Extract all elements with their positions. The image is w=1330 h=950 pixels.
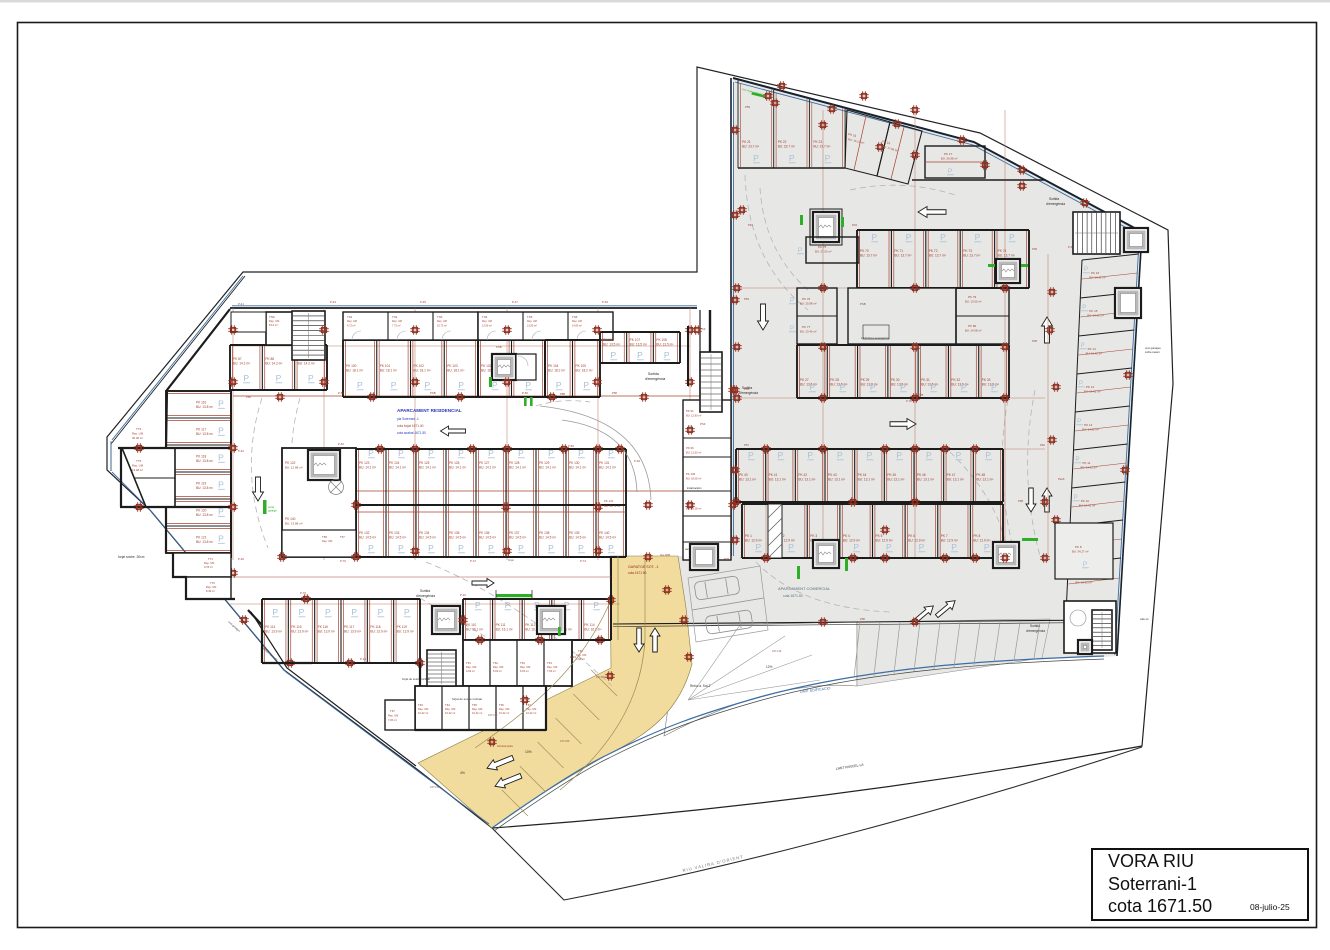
svg-text:PK 11: PK 11: [1082, 461, 1090, 465]
svg-text:P: P: [593, 600, 599, 610]
svg-text:P: P: [906, 232, 912, 242]
svg-text:PK 121: PK 121: [196, 536, 207, 540]
svg-text:Rep. UM: Rep. UM: [527, 320, 537, 323]
svg-text:P: P: [518, 543, 524, 553]
svg-text:P-70: P-70: [340, 559, 346, 563]
svg-text:PK 31: PK 31: [921, 378, 930, 382]
svg-text:PK 116: PK 116: [196, 401, 206, 405]
svg-text:PK 117: PK 117: [196, 428, 206, 432]
svg-text:P: P: [458, 448, 464, 458]
svg-text:BU: 14.42 m²: BU: 14.42 m²: [1080, 466, 1097, 470]
svg-text:PK 72: PK 72: [929, 249, 938, 253]
svg-text:PK 10: PK 10: [1081, 499, 1090, 503]
svg-text:BU: 12.88 m²: BU: 12.88 m²: [285, 466, 303, 470]
svg-text:P-52: P-52: [338, 391, 344, 395]
svg-text:8.49 m²: 8.49 m²: [206, 589, 215, 593]
svg-text:T63: T63: [418, 703, 423, 707]
svg-text:P: P: [299, 607, 305, 617]
svg-text:PK 102: PK 102: [481, 364, 492, 368]
svg-text:APARCAMENT COMERCIAL: APARCAMENT COMERCIAL: [778, 586, 831, 591]
svg-text:P: P: [789, 153, 795, 163]
svg-text:7.72 m²: 7.72 m²: [392, 325, 401, 328]
svg-text:P: P: [984, 542, 990, 552]
svg-text:P63: P63: [744, 297, 749, 301]
svg-text:cota 1671.50: cota 1671.50: [783, 594, 803, 598]
svg-text:PK 47: PK 47: [947, 473, 956, 477]
svg-text:P: P: [218, 534, 224, 544]
svg-text:4.72 m²: 4.72 m²: [347, 325, 356, 328]
svg-text:Rep. UM: Rep. UM: [499, 707, 509, 711]
svg-text:P: P: [840, 382, 846, 392]
svg-text:BU: 14.1 m²: BU: 14.1 m²: [419, 466, 436, 470]
svg-text:vent garatges: vent garatges: [1145, 346, 1161, 350]
svg-text:PK 129: PK 129: [539, 461, 550, 465]
svg-text:4%: 4%: [460, 771, 465, 775]
svg-text:Rep. UM: Rep. UM: [269, 319, 279, 323]
svg-text:Rep. UM: Rep. UM: [392, 320, 402, 323]
svg-text:14.80 m²: 14.80 m²: [572, 325, 582, 328]
svg-text:P: P: [368, 543, 374, 553]
svg-text:instal·lacions: instal·lacions: [687, 487, 702, 490]
svg-text:PK 128: PK 128: [509, 461, 520, 465]
svg-text:BU: 13.9 m²: BU: 13.9 m²: [291, 630, 308, 634]
svg-text:PK 134: PK 134: [419, 531, 430, 535]
svg-text:cota 1671.50: cota 1671.50: [628, 571, 647, 575]
svg-text:P: P: [308, 373, 314, 383]
svg-text:BU: 14.5 m²: BU: 14.5 m²: [479, 536, 496, 540]
svg-text:d'emergència: d'emergència: [739, 391, 758, 395]
svg-text:Rep. UM: Rep. UM: [520, 665, 530, 669]
svg-text:PK 122: PK 122: [285, 461, 296, 465]
svg-text:BU: 14.1 m²: BU: 14.1 m²: [449, 466, 466, 470]
svg-text:PK 91: PK 91: [686, 409, 694, 413]
svg-text:BU: 14.42 m²: BU: 14.42 m²: [1084, 390, 1101, 394]
svg-text:P: P: [556, 380, 562, 390]
svg-text:Rep. UM: Rep. UM: [418, 707, 428, 711]
svg-text:P: P: [458, 380, 464, 390]
svg-text:PK 8: PK 8: [973, 534, 980, 538]
svg-text:P: P: [1077, 419, 1081, 425]
svg-text:P: P: [753, 153, 759, 163]
svg-text:forjat de sostre inclinat: forjat de sostre inclinat: [402, 677, 430, 681]
svg-text:TT1: TT1: [208, 557, 213, 561]
svg-text:P: P: [1075, 457, 1079, 463]
svg-text:BU: 14.1 m²: BU: 14.1 m²: [479, 466, 496, 470]
svg-text:P: P: [930, 382, 936, 392]
svg-text:P: P: [853, 542, 859, 552]
svg-text:PK 131: PK 131: [604, 499, 614, 503]
svg-text:BU: 38.71 m²: BU: 38.71 m²: [604, 504, 621, 508]
svg-text:BU: 13.5 m²: BU: 13.5 m²: [656, 343, 673, 347]
svg-text:P: P: [940, 232, 946, 242]
svg-text:BU: 13.9 m²: BU: 13.9 m²: [397, 630, 414, 634]
svg-text:1671.50: 1671.50: [430, 785, 440, 789]
svg-text:P: P: [867, 450, 873, 460]
svg-text:P: P: [404, 607, 410, 617]
svg-text:fins 60B: fins 60B: [660, 553, 670, 557]
svg-text:1671.80: 1671.80: [560, 739, 570, 743]
svg-text:P: P: [1084, 267, 1088, 273]
svg-text:BU: 18.2 m²: BU: 18.2 m²: [576, 369, 593, 373]
svg-text:P: P: [755, 542, 761, 552]
svg-text:BU: 14.5 m²: BU: 14.5 m²: [599, 536, 616, 540]
svg-text:P: P: [325, 607, 331, 617]
svg-text:P: P: [961, 382, 967, 392]
svg-text:Rep. UM: Rep. UM: [466, 665, 476, 669]
svg-text:PK 15: PK 15: [1089, 309, 1098, 313]
svg-text:PSB: PSB: [496, 345, 502, 349]
svg-text:PK 48: PK 48: [976, 473, 985, 477]
svg-text:TN5: TN5: [527, 315, 533, 319]
svg-text:P28: P28: [724, 557, 729, 561]
svg-text:P: P: [578, 543, 584, 553]
svg-text:PK 108: PK 108: [656, 338, 667, 342]
svg-text:P: P: [488, 543, 494, 553]
svg-text:BU: 18.1 m²: BU: 18.1 m²: [380, 369, 397, 373]
svg-text:P: P: [218, 426, 224, 436]
svg-text:P: P: [492, 380, 498, 390]
svg-text:BU: 16.1 m²: BU: 16.1 m²: [584, 628, 601, 632]
svg-text:P61: P61: [748, 223, 753, 227]
svg-text:cota 1671.50: cota 1671.50: [1108, 896, 1212, 916]
svg-text:P: P: [790, 326, 794, 332]
svg-text:Rep. UM: Rep. UM: [472, 707, 482, 711]
svg-text:BU: 13.1 m²: BU: 13.1 m²: [828, 478, 845, 482]
svg-text:PK 45: PK 45: [887, 473, 896, 477]
svg-text:PK 74: PK 74: [998, 249, 1007, 253]
svg-text:PK 103: PK 103: [447, 364, 458, 368]
svg-text:Rep. UM: Rep. UM: [482, 320, 492, 323]
svg-text:PSF: PSF: [700, 422, 706, 426]
svg-text:Rep. UM: Rep. UM: [206, 585, 216, 589]
svg-text:P: P: [951, 542, 957, 552]
svg-text:BU: 14.2 m²: BU: 14.2 m²: [298, 362, 315, 366]
svg-text:Sortida: Sortida: [648, 372, 659, 376]
svg-text:BU: 13.1 m²: BU: 13.1 m²: [976, 478, 993, 482]
svg-text:BU: 13.7 m²: BU: 13.7 m²: [998, 254, 1015, 258]
svg-text:P: P: [351, 607, 357, 617]
svg-text:BU: 16.1 m²: BU: 16.1 m²: [466, 628, 483, 632]
svg-text:PK 4: PK 4: [843, 534, 850, 538]
svg-text:d'emergència: d'emergència: [416, 594, 435, 598]
svg-text:P-72: P-72: [470, 559, 476, 563]
svg-text:PK 138: PK 138: [539, 531, 550, 535]
svg-text:P34: P34: [852, 223, 857, 227]
svg-text:BU: 14.42 m²: BU: 14.42 m²: [1086, 352, 1103, 356]
svg-text:sobre-rasant: sobre-rasant: [1145, 350, 1160, 354]
svg-text:PK 27: PK 27: [800, 378, 809, 382]
svg-text:Rep. UM: Rep. UM: [388, 714, 398, 718]
svg-text:PK 115: PK 115: [291, 625, 301, 629]
svg-text:PK 44: PK 44: [858, 473, 867, 477]
svg-text:P-30: P-30: [634, 459, 640, 463]
svg-text:BU: 13.1 m²: BU: 13.1 m²: [739, 478, 756, 482]
svg-text:0.78 m²: 0.78 m²: [204, 565, 213, 569]
svg-text:T62: T62: [493, 661, 498, 665]
svg-text:P: P: [488, 448, 494, 458]
svg-text:12%: 12%: [766, 665, 773, 669]
svg-text:P: P: [368, 448, 374, 458]
svg-text:BU: 27.00 m²: BU: 27.00 m²: [815, 250, 832, 254]
svg-text:PK 28: PK 28: [830, 378, 839, 382]
svg-text:P-45: P-45: [420, 300, 426, 304]
svg-text:30.06 m²: 30.06 m²: [132, 436, 143, 440]
svg-text:garatge: garatge: [268, 509, 277, 513]
svg-text:P: P: [1083, 561, 1087, 568]
svg-text:10.72 m²: 10.72 m²: [437, 325, 447, 328]
svg-text:P: P: [276, 373, 282, 383]
svg-text:PK 73: PK 73: [963, 249, 972, 253]
svg-text:P: P: [272, 607, 278, 617]
svg-text:BU: 12.50 m²: BU: 12.50 m²: [686, 451, 701, 455]
svg-text:Rep. UM: Rep. UM: [437, 320, 447, 323]
svg-text:BU: 26.88 m²: BU: 26.88 m²: [941, 157, 958, 161]
svg-text:PK 87: PK 87: [233, 357, 242, 361]
svg-text:P96: P96: [860, 617, 865, 621]
svg-text:P: P: [525, 380, 531, 390]
svg-text:P58: P58: [612, 391, 617, 395]
svg-text:P: P: [896, 450, 902, 460]
svg-text:10.42 m²: 10.42 m²: [445, 711, 455, 715]
svg-text:Rep. UM: Rep. UM: [526, 707, 536, 711]
svg-text:P: P: [578, 448, 584, 458]
svg-text:BU: 13.1 m²: BU: 13.1 m²: [917, 478, 934, 482]
svg-text:P: P: [378, 607, 384, 617]
svg-text:PK 77: PK 77: [802, 325, 811, 329]
svg-text:Rep. UM: Rep. UM: [132, 432, 144, 436]
svg-text:PK 79: PK 79: [968, 295, 977, 299]
svg-text:10.42 m²: 10.42 m²: [526, 711, 536, 715]
svg-text:BU: 13.00 m²: BU: 13.00 m²: [965, 300, 982, 304]
svg-text:P36: P36: [1032, 247, 1037, 251]
svg-text:P50: P50: [246, 395, 251, 399]
svg-text:P-16: P-16: [460, 593, 466, 597]
svg-text:TN1: TN1: [347, 315, 353, 319]
svg-text:TT0: TT0: [210, 581, 215, 585]
svg-text:P: P: [991, 382, 997, 392]
svg-text:P40: P40: [1040, 443, 1045, 447]
svg-text:P: P: [926, 450, 932, 460]
svg-text:T66: T66: [499, 703, 504, 707]
svg-text:4.03 m²: 4.03 m²: [466, 669, 475, 673]
svg-text:P: P: [218, 399, 224, 409]
svg-text:PK 133: PK 133: [389, 531, 400, 535]
svg-text:PK 21: PK 21: [742, 140, 751, 144]
svg-text:P: P: [518, 448, 524, 458]
svg-text:P: P: [391, 380, 397, 390]
svg-text:PK 8: PK 8: [1075, 545, 1082, 549]
svg-text:BU: 13.1 m²: BU: 13.1 m²: [798, 478, 815, 482]
svg-text:1671.46: 1671.46: [772, 649, 782, 653]
svg-text:BU: 13.8 m²: BU: 13.8 m²: [196, 432, 213, 436]
svg-text:BU: 14.08 m²: BU: 14.08 m²: [965, 329, 982, 333]
svg-text:BU: 14.1 m²: BU: 14.1 m²: [569, 466, 586, 470]
svg-text:BU: 13.5 m²: BU: 13.5 m²: [603, 343, 620, 347]
svg-text:P: P: [870, 382, 876, 392]
svg-text:cota acabat 1671.50: cota acabat 1671.50: [397, 431, 426, 435]
svg-text:P: P: [583, 380, 589, 390]
svg-text:BU: 13.9 m²: BU: 13.9 m²: [265, 630, 282, 634]
svg-text:PK 140: PK 140: [599, 531, 610, 535]
svg-text:P-49: P-49: [602, 300, 608, 304]
svg-text:Pax6: Pax6: [1058, 477, 1065, 481]
svg-text:P: P: [807, 450, 813, 460]
svg-text:PK 116: PK 116: [318, 625, 328, 629]
svg-text:PK 130: PK 130: [569, 461, 580, 465]
svg-text:PK 104: PK 104: [548, 364, 559, 368]
svg-text:P-76: P-76: [300, 591, 306, 595]
svg-text:10.42 m²: 10.42 m²: [418, 711, 428, 715]
svg-text:BU: 18.2 m²: BU: 18.2 m²: [548, 369, 565, 373]
svg-text:BU: 25.88 m²: BU: 25.88 m²: [800, 302, 817, 306]
svg-text:P7B: P7B: [918, 393, 923, 397]
svg-text:P-42: P-42: [238, 449, 244, 453]
svg-text:PK 30: PK 30: [891, 378, 900, 382]
svg-text:Soterrani-1: Soterrani-1: [1108, 874, 1197, 894]
svg-text:P: P: [548, 448, 554, 458]
svg-text:PK 111: PK 111: [496, 623, 506, 627]
svg-text:BU: 14.42 m²: BU: 14.42 m²: [1075, 581, 1092, 585]
svg-text:P: P: [425, 380, 431, 390]
svg-text:PK 139: PK 139: [569, 531, 580, 535]
svg-text:T57: T57: [340, 535, 345, 539]
svg-text:P: P: [948, 168, 952, 175]
svg-text:1671.98: 1671.98: [520, 697, 530, 701]
svg-text:7.06 m²: 7.06 m²: [388, 718, 397, 722]
svg-text:P: P: [637, 350, 643, 360]
svg-text:PK 137: PK 137: [509, 531, 520, 535]
svg-text:PK 7: PK 7: [941, 534, 948, 538]
svg-text:PK 75: PK 75: [818, 245, 827, 249]
svg-text:BU: 14.1 m²: BU: 14.1 m²: [389, 466, 406, 470]
svg-text:P-74: P-74: [580, 559, 586, 563]
svg-text:P-62: P-62: [338, 442, 344, 446]
svg-text:PK 1: PK 1: [745, 534, 752, 538]
svg-text:BU: 13.1 m²: BU: 13.1 m²: [858, 478, 875, 482]
svg-text:BU: 14.1 m²: BU: 14.1 m²: [599, 466, 616, 470]
svg-text:5.03 m²: 5.03 m²: [493, 669, 502, 673]
svg-text:10%: 10%: [525, 750, 532, 754]
svg-text:1671.50: 1671.50: [596, 675, 606, 679]
svg-text:TN6: TN6: [269, 315, 275, 319]
svg-text:P: P: [975, 232, 981, 242]
svg-text:P: P: [1082, 305, 1086, 311]
svg-text:BU: 16.1 m²: BU: 16.1 m²: [496, 628, 513, 632]
svg-text:P-56: P-56: [522, 391, 528, 395]
svg-text:P: P: [919, 542, 925, 552]
svg-text:PSB: PSB: [860, 302, 866, 306]
svg-text:P: P: [218, 480, 224, 490]
svg-text:P88: P88: [560, 392, 565, 396]
svg-text:BU: 13.8 m²: BU: 13.8 m²: [196, 540, 213, 544]
svg-text:BU: 18.08 m²: BU: 18.08 m²: [686, 477, 701, 481]
svg-text:T64: T64: [547, 661, 552, 665]
svg-text:pla Soterrani -1: pla Soterrani -1: [397, 417, 419, 421]
svg-text:BU: 14.42 m²: BU: 14.42 m²: [1079, 504, 1096, 508]
svg-text:1.100 llums emergència: 1.100 llums emergència: [861, 336, 889, 340]
svg-text:APARCAMENT RESIDENCIAL: APARCAMENT RESIDENCIAL: [397, 408, 462, 413]
svg-text:T64: T64: [445, 703, 450, 707]
svg-text:P: P: [664, 350, 670, 360]
svg-text:P: P: [985, 450, 991, 460]
svg-text:PK 88: PK 88: [265, 357, 274, 361]
svg-text:P: P: [886, 542, 892, 552]
svg-text:PK 112: PK 112: [525, 623, 535, 627]
svg-text:Rep. UM: Rep. UM: [493, 665, 503, 669]
svg-text:T58: T58: [322, 535, 327, 539]
svg-text:PK 22: PK 22: [778, 140, 787, 144]
svg-text:PK 17: PK 17: [944, 152, 953, 156]
svg-text:BU: 13.8 m²: BU: 13.8 m²: [196, 486, 213, 490]
svg-text:Retoc a. Sot-2: Retoc a. Sot-2: [690, 684, 711, 688]
svg-text:P-41: P-41: [238, 302, 244, 306]
svg-text:13.80 m²: 13.80 m²: [527, 325, 537, 328]
svg-text:BU: 18.1 m²: BU: 18.1 m²: [414, 369, 431, 373]
svg-text:BU: 12.80 m²: BU: 12.80 m²: [686, 414, 701, 418]
svg-text:BU: 13.9 m²: BU: 13.9 m²: [370, 630, 387, 634]
svg-text:PK 114: PK 114: [584, 623, 594, 627]
svg-text:P: P: [748, 450, 754, 460]
svg-text:BU: 14.5 m²: BU: 14.5 m²: [569, 536, 586, 540]
svg-text:P-36: P-36: [238, 557, 244, 561]
svg-text:P: P: [809, 382, 815, 392]
svg-text:forjat sostre -30cm: forjat sostre -30cm: [118, 555, 145, 559]
svg-text:P-43: P-43: [330, 300, 336, 304]
svg-text:PK 6: PK 6: [908, 534, 915, 538]
svg-text:Rep. UM: Rep. UM: [547, 665, 557, 669]
svg-text:PK 135: PK 135: [449, 531, 460, 535]
svg-text:BU: 23.7 m²: BU: 23.7 m²: [742, 145, 759, 149]
svg-text:TT5: TT5: [136, 459, 142, 463]
svg-text:TN2: TN2: [392, 315, 398, 319]
svg-text:P: P: [1074, 495, 1078, 501]
svg-text:P: P: [900, 382, 906, 392]
svg-text:P65: P65: [744, 387, 749, 391]
svg-text:BU: 13.7 m²: BU: 13.7 m²: [894, 254, 911, 258]
svg-text:PK 96: PK 96: [686, 446, 694, 450]
svg-text:PK 110: PK 110: [466, 623, 476, 627]
svg-text:BU: 14.5 m²: BU: 14.5 m²: [449, 536, 466, 540]
svg-text:PK 40: PK 40: [739, 473, 748, 477]
svg-text:cota forjat 1671.40: cota forjat 1671.40: [397, 424, 424, 428]
svg-text:PK 70: PK 70: [860, 249, 869, 253]
svg-text:PK 29: PK 29: [861, 378, 870, 382]
svg-text:PK 46: PK 46: [917, 473, 926, 477]
svg-text:PK 140: PK 140: [285, 517, 296, 521]
svg-text:BU: 23.7 m²: BU: 23.7 m²: [813, 145, 830, 149]
svg-text:PK 124: PK 124: [389, 461, 400, 465]
svg-text:Rep. UM: Rep. UM: [445, 707, 455, 711]
svg-text:PK 114: PK 114: [265, 625, 275, 629]
svg-text:PK 76: PK 76: [802, 297, 811, 301]
svg-text:TN6: TN6: [572, 315, 578, 319]
svg-text:BU: 13.1 m²: BU: 13.1 m²: [947, 478, 964, 482]
svg-text:PSB: PSB: [430, 391, 436, 395]
svg-text:PK 123: PK 123: [359, 461, 370, 465]
svg-text:BU: 14.1 m²: BU: 14.1 m²: [509, 466, 526, 470]
svg-text:P-66: P-66: [568, 444, 574, 448]
svg-text:PK 131: PK 131: [599, 461, 610, 465]
svg-text:PK 5: PK 5: [876, 534, 883, 538]
svg-text:P-47: P-47: [512, 300, 518, 304]
svg-text:PK 41: PK 41: [769, 473, 778, 477]
svg-text:P-19: P-19: [570, 655, 576, 659]
svg-text:d'emergència: d'emergència: [1046, 202, 1065, 206]
svg-text:P: P: [1009, 232, 1015, 242]
svg-text:13.48 m²: 13.48 m²: [132, 468, 143, 472]
svg-text:P: P: [548, 543, 554, 553]
svg-text:PK 13: PK 13: [1086, 385, 1095, 389]
